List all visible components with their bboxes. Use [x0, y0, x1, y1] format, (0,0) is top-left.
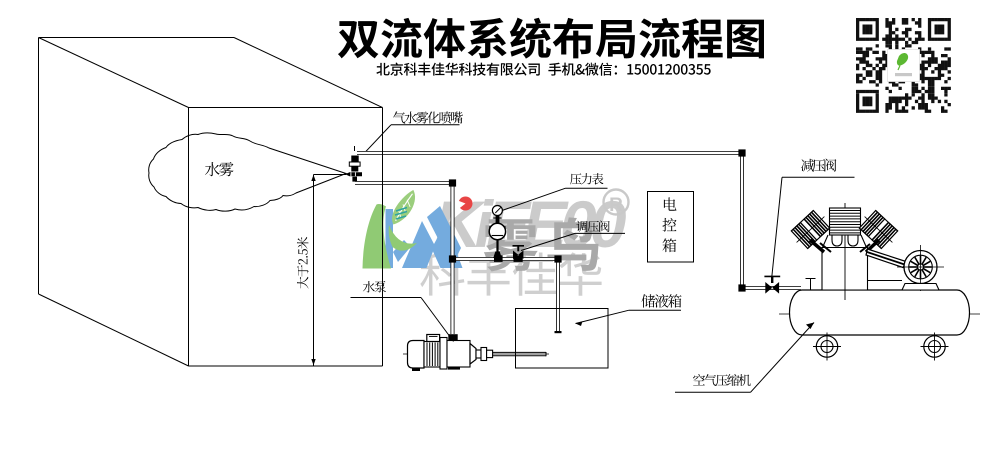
svg-text:R: R [609, 195, 623, 216]
